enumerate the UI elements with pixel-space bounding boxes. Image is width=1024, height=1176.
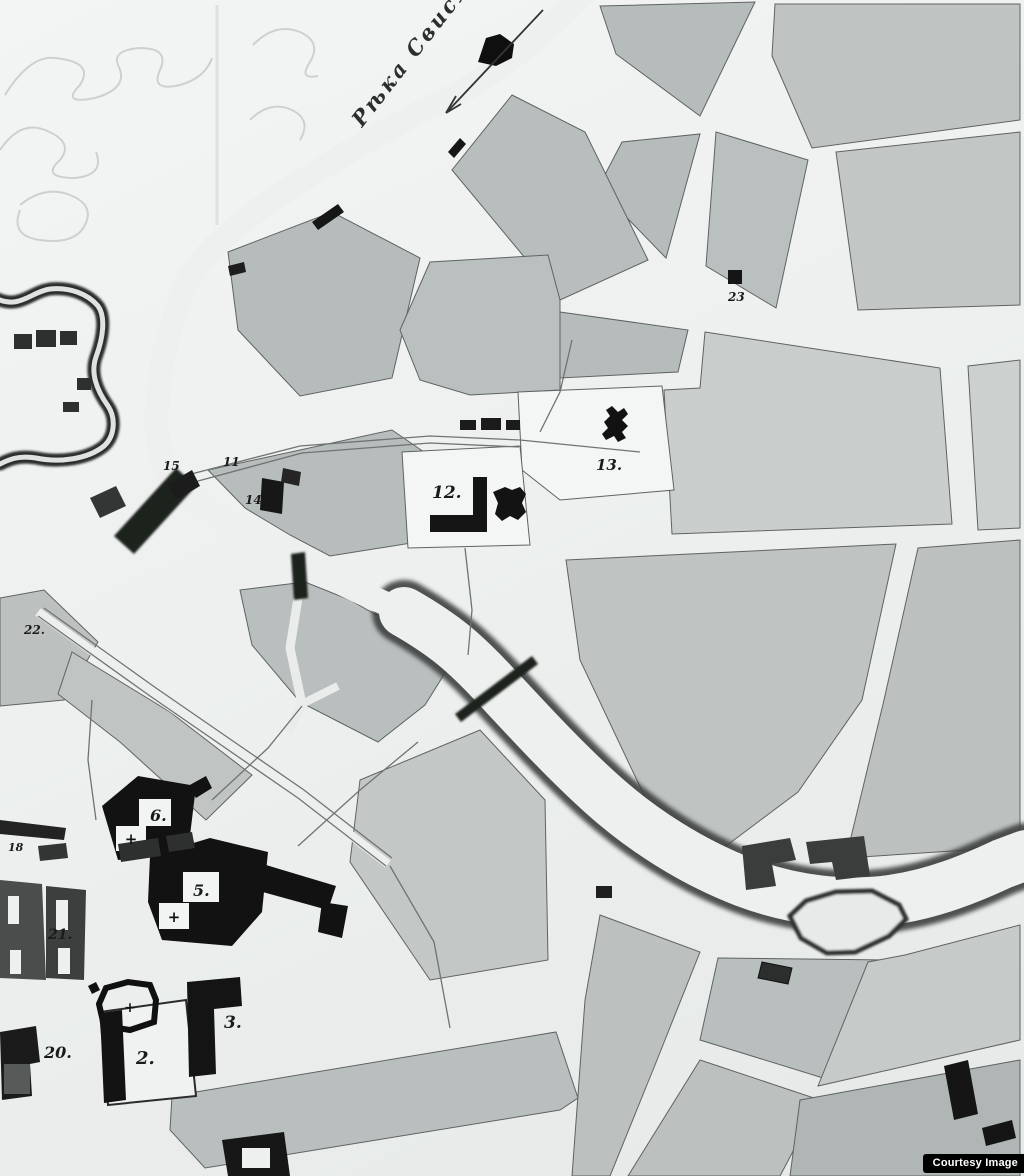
plot-label-20: 20.	[43, 1043, 72, 1062]
plot-label-18: 18	[8, 841, 24, 854]
building	[38, 843, 68, 861]
contour-line	[250, 107, 305, 140]
church-cross-icon: +	[168, 908, 181, 926]
city-block	[628, 1060, 820, 1176]
monastery-5	[148, 838, 348, 946]
church-building	[493, 487, 526, 521]
building	[100, 1010, 126, 1103]
city-block	[228, 212, 420, 396]
church-dot	[88, 982, 100, 994]
building	[506, 420, 520, 430]
building	[728, 270, 742, 284]
map-canvas: Рѣка Свислочь 2. 3. 5. 6. 11 12. 13. 14 …	[0, 0, 1024, 1176]
building	[77, 378, 91, 390]
city-block	[600, 2, 755, 116]
courtyard	[10, 950, 21, 974]
plot-label-3: 3.	[224, 1013, 242, 1033]
bridge	[291, 552, 308, 600]
courtyard	[56, 900, 68, 930]
city-block	[560, 312, 688, 378]
city-block	[836, 132, 1020, 310]
plot-label-15: 15	[163, 459, 180, 473]
historical-city-map: Рѣка Свислочь 2. 3. 5. 6. 11 12. 13. 14 …	[0, 0, 1024, 1176]
building	[0, 880, 46, 980]
plot-label-12: 12.	[432, 483, 462, 503]
plot-label-2: 2.	[135, 1048, 155, 1069]
building	[260, 478, 284, 514]
plot-label-14: 14	[245, 493, 262, 507]
flow-arrow-shaft	[447, 10, 543, 112]
flow-arrow	[446, 10, 543, 113]
plot-label-5: 5.	[193, 881, 210, 900]
building	[481, 418, 501, 430]
church-cross-icon: +	[125, 830, 138, 848]
courtyard	[8, 896, 19, 924]
building	[63, 402, 79, 412]
building	[596, 886, 612, 898]
plot-label-11: 11	[223, 455, 240, 469]
city-block	[664, 332, 952, 534]
plot-label-6: 6.	[150, 806, 167, 825]
building	[90, 486, 126, 518]
courtesy-watermark: Courtesy Image	[923, 1154, 1024, 1173]
courtyard	[242, 1148, 270, 1168]
city-block	[400, 255, 560, 395]
city-block	[772, 4, 1020, 148]
building	[60, 331, 77, 345]
building	[14, 334, 32, 349]
building	[460, 420, 476, 430]
contour-line	[5, 48, 212, 100]
city-block	[706, 132, 808, 308]
contour-line	[0, 128, 98, 179]
contour-line	[18, 192, 88, 241]
courtyard	[58, 948, 70, 974]
plot-label-21: 21.	[47, 927, 72, 943]
plot-label-22: 22.	[23, 623, 45, 637]
building	[36, 330, 56, 347]
plot-label-23: 23	[727, 290, 745, 304]
creek	[0, 289, 113, 464]
building	[0, 820, 66, 840]
building	[318, 902, 348, 938]
river-island	[790, 891, 906, 953]
building	[448, 138, 466, 158]
church-cross-icon: +	[124, 1000, 136, 1016]
contour-line	[253, 29, 318, 77]
city-block	[968, 360, 1020, 530]
churchyard-block	[518, 386, 674, 500]
plot-label-13: 13.	[596, 456, 622, 474]
creek-loop-houses	[14, 330, 91, 412]
building	[4, 1064, 30, 1094]
